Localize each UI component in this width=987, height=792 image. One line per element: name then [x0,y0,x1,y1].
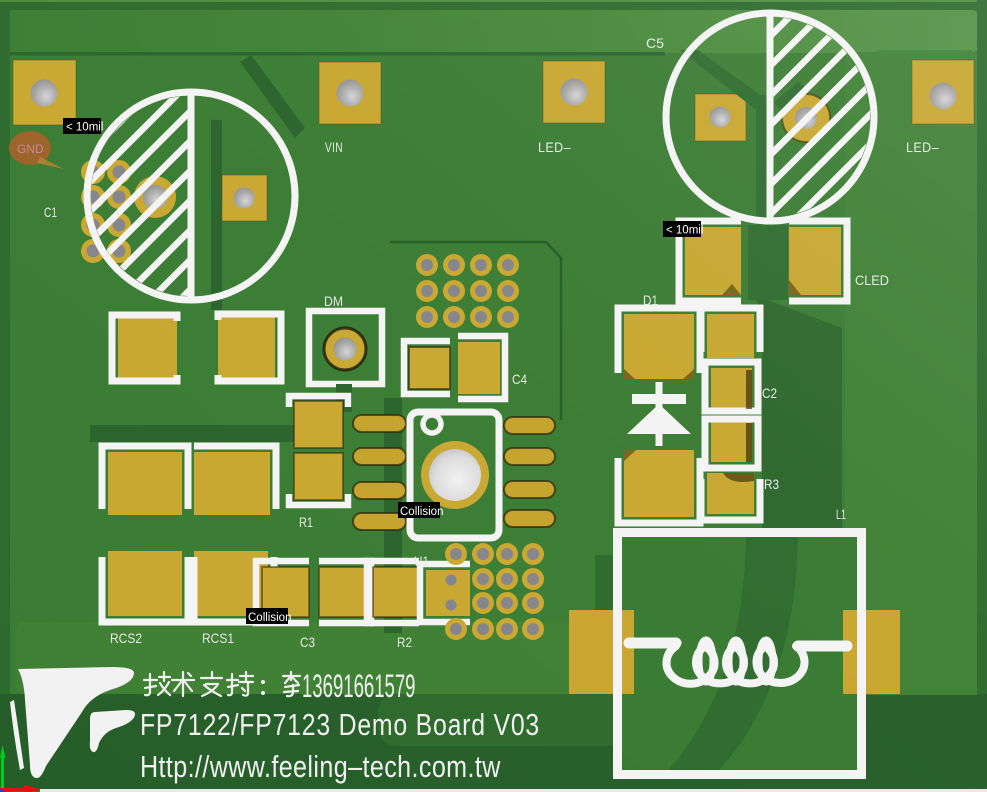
svg-text:< 10mil: < 10mil [666,225,703,237]
svg-text:Collision: Collision [400,506,443,518]
svg-text:< 10mil: < 10mil [66,122,103,134]
svg-text:Collision: Collision [248,612,291,624]
